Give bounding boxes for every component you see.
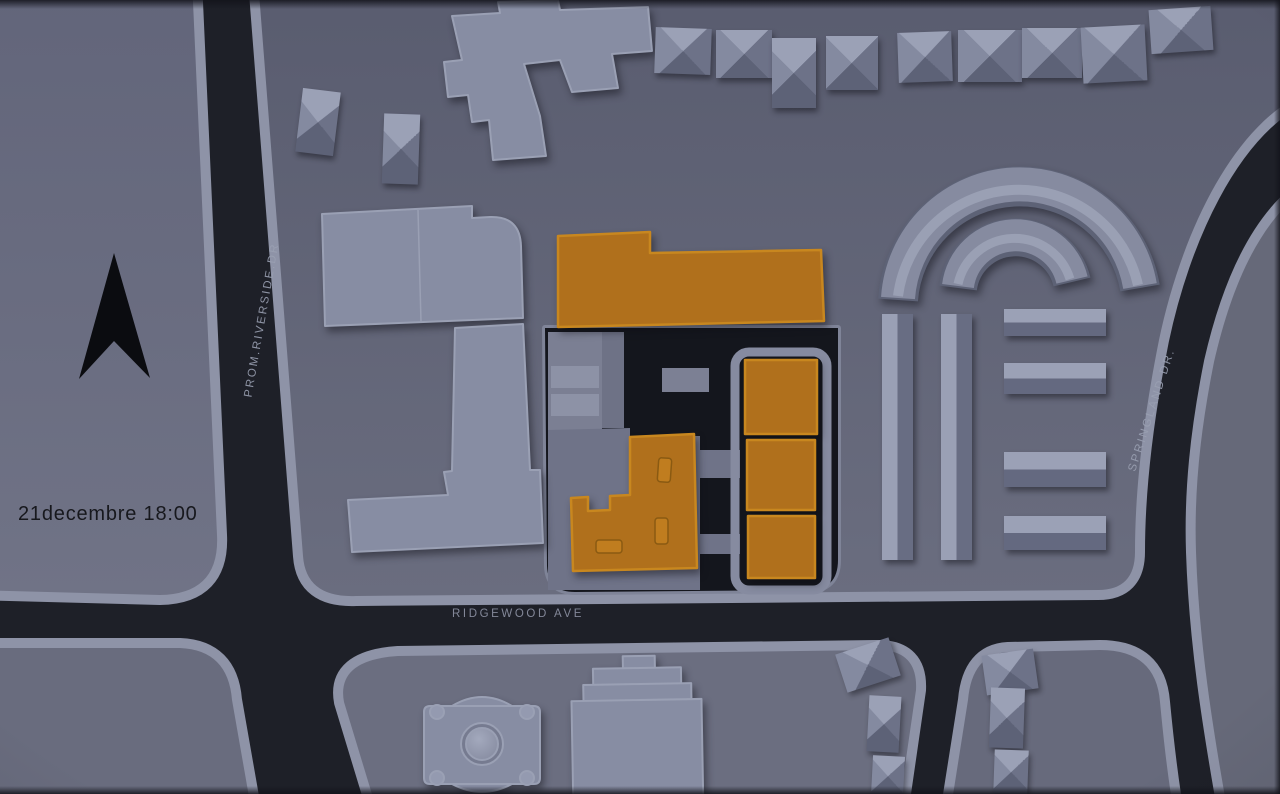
site-plan-canvas xyxy=(0,0,1280,794)
roof-unit xyxy=(596,540,622,553)
building-dome-knob xyxy=(430,705,444,719)
block-south-houses xyxy=(950,650,1174,794)
plaza-pad xyxy=(662,368,709,392)
building-dome xyxy=(466,728,498,760)
roof-unit xyxy=(657,458,672,483)
building-dome-knob xyxy=(520,771,534,785)
building-dome-knob xyxy=(520,705,534,719)
building-dome-knob xyxy=(430,771,444,785)
building-highlight-row-1 xyxy=(745,360,817,434)
plaza-step xyxy=(551,366,599,388)
site-model-render: PROM.RIVERSIDE.DR SPRINGLAND DR. RIDGEWO… xyxy=(0,0,1280,794)
plaza-path xyxy=(602,332,624,428)
building-highlight-row-3 xyxy=(748,516,815,578)
building-highlight-row-2 xyxy=(747,440,815,510)
building-slab xyxy=(322,206,523,326)
block-southwest xyxy=(0,648,252,794)
plaza-step xyxy=(551,394,599,416)
roof-unit xyxy=(655,518,668,544)
street-label-ridgewood: RIDGEWOOD AVE xyxy=(452,608,584,620)
datetime-annotation: 21decembre 18:00 xyxy=(18,503,198,526)
